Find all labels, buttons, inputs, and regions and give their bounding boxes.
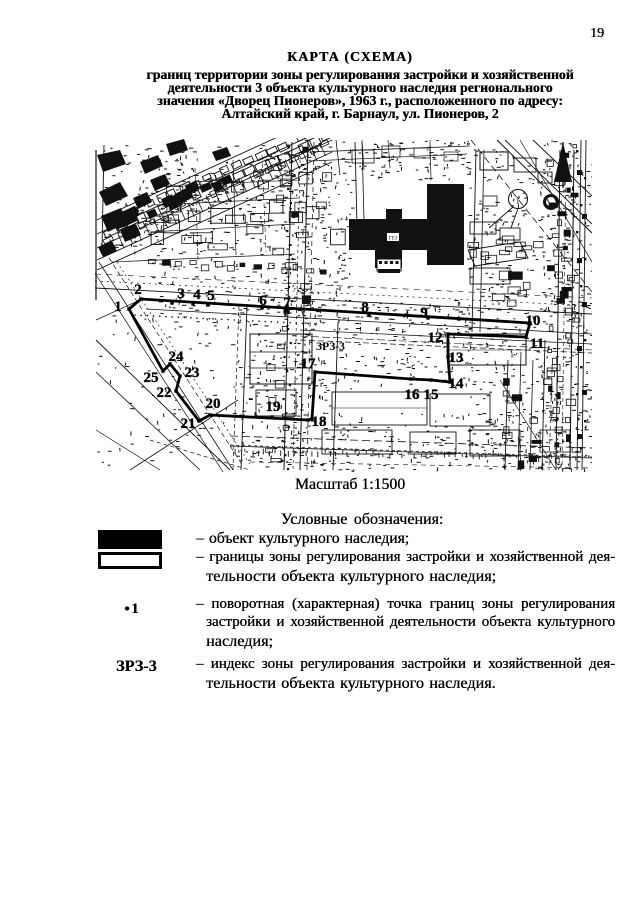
svg-text:1: 1 (114, 299, 122, 315)
svg-text:15: 15 (424, 387, 439, 403)
svg-text:6: 6 (259, 293, 267, 309)
svg-text:3: 3 (177, 286, 185, 302)
svg-text:7: 7 (283, 295, 291, 311)
svg-text:18: 18 (312, 414, 327, 430)
svg-text:ЗРЗ-3: ЗРЗ-3 (316, 341, 345, 353)
svg-text:5: 5 (207, 288, 215, 304)
svg-text:9: 9 (420, 305, 428, 321)
svg-text:ГЕЗ: ГЕЗ (389, 237, 398, 242)
svg-text:23: 23 (185, 365, 200, 381)
svg-text:14: 14 (449, 376, 465, 392)
svg-text:19: 19 (266, 399, 281, 415)
svg-text:21: 21 (181, 416, 196, 432)
svg-text:20: 20 (206, 396, 221, 412)
svg-text:24: 24 (169, 349, 185, 365)
svg-text:17: 17 (301, 356, 317, 372)
svg-text:2: 2 (134, 282, 142, 298)
svg-text:10: 10 (526, 313, 541, 329)
svg-text:11: 11 (530, 336, 544, 352)
svg-text:22: 22 (157, 385, 172, 401)
svg-text:13: 13 (449, 350, 464, 366)
svg-text:4: 4 (193, 287, 201, 303)
svg-text:1: 1 (516, 196, 521, 206)
svg-text:12: 12 (428, 330, 443, 346)
svg-text:25: 25 (144, 370, 159, 386)
svg-text:8: 8 (361, 300, 369, 316)
svg-text:16: 16 (405, 387, 421, 403)
